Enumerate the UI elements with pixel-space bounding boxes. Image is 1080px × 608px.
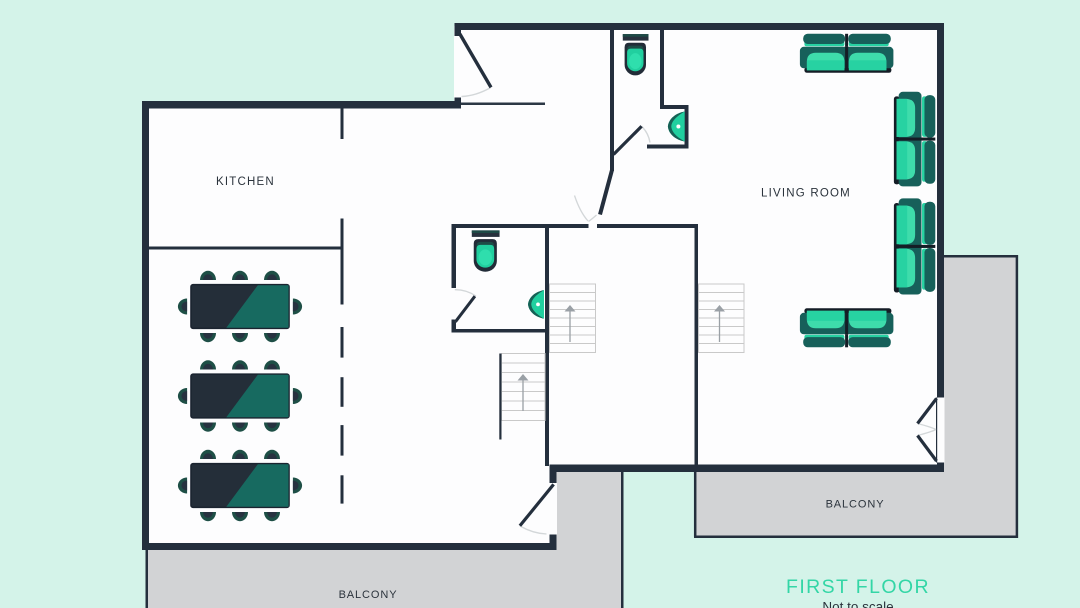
svg-text:LIVING ROOM: LIVING ROOM bbox=[761, 188, 851, 200]
svg-text:Not to scale: Not to scale bbox=[822, 600, 893, 608]
svg-text:KITCHEN: KITCHEN bbox=[216, 176, 275, 188]
svg-text:BALCONY: BALCONY bbox=[826, 499, 885, 511]
svg-text:BALCONY: BALCONY bbox=[339, 589, 398, 601]
svg-text:FIRST FLOOR: FIRST FLOOR bbox=[786, 576, 930, 598]
